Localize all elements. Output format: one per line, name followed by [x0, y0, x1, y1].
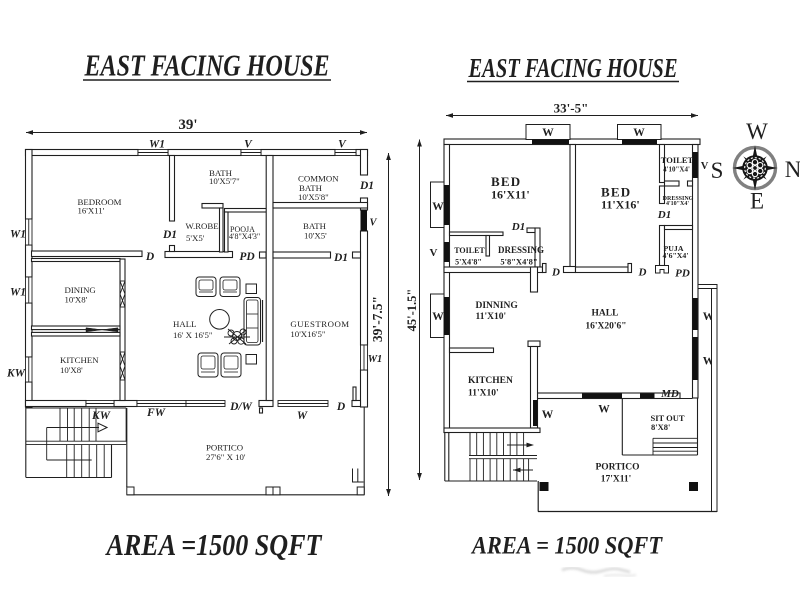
svg-text:4'10"X4': 4'10"X4' — [663, 166, 690, 174]
svg-text:V: V — [701, 161, 709, 172]
svg-text:5'X4'8": 5'X4'8" — [455, 258, 482, 267]
svg-text:16'X11': 16'X11' — [78, 206, 105, 216]
svg-text:4'10"X4': 4'10"X4' — [666, 201, 689, 207]
svg-text:10'X16'5": 10'X16'5" — [290, 329, 326, 339]
svg-text:D1: D1 — [657, 209, 671, 221]
svg-text:D1: D1 — [162, 229, 177, 241]
svg-text:S: S — [711, 158, 724, 183]
svg-text:KITCHEN: KITCHEN — [60, 355, 99, 365]
svg-text:N: N — [785, 157, 800, 182]
svg-text:W: W — [432, 201, 444, 213]
svg-text:4'8"X4'3": 4'8"X4'3" — [229, 232, 260, 241]
svg-text:17'X11': 17'X11' — [601, 475, 632, 485]
svg-text:D: D — [551, 267, 560, 279]
svg-text:D1: D1 — [511, 221, 525, 233]
svg-text:33'-5": 33'-5" — [554, 101, 589, 116]
svg-text:DINNING: DINNING — [476, 301, 519, 311]
svg-text:D/W: D/W — [229, 401, 253, 413]
svg-text:16'X11': 16'X11' — [491, 188, 530, 202]
svg-text:5'X5': 5'X5' — [186, 233, 205, 243]
svg-text:45'-1.5": 45'-1.5" — [405, 289, 419, 332]
svg-text:W: W — [633, 127, 645, 139]
svg-text:GUESTROOM: GUESTROOM — [290, 319, 349, 329]
svg-text:W: W — [542, 127, 554, 139]
svg-text:27'6" X 10': 27'6" X 10' — [206, 452, 246, 462]
svg-text:AREA =1500 SQFT: AREA =1500 SQFT — [105, 527, 323, 562]
svg-text:AREA = 1500 SQFT: AREA = 1500 SQFT — [470, 531, 663, 560]
svg-text:EAST FACING HOUSE: EAST FACING HOUSE — [468, 53, 678, 83]
svg-text:W: W — [598, 404, 610, 416]
svg-text:PD: PD — [675, 268, 690, 280]
svg-text:5'8"X4'8": 5'8"X4'8" — [500, 257, 537, 267]
svg-text:11'X10': 11'X10' — [476, 312, 507, 322]
svg-text:MD: MD — [660, 388, 679, 400]
svg-text:DRESSING: DRESSING — [498, 245, 544, 255]
svg-text:16'X20'6": 16'X20'6" — [585, 322, 626, 332]
svg-text:V: V — [430, 247, 438, 259]
svg-text:V: V — [369, 218, 377, 229]
svg-text:W1: W1 — [10, 229, 26, 241]
svg-text:W.ROBE: W.ROBE — [186, 221, 219, 231]
svg-text:W1: W1 — [149, 139, 165, 151]
svg-text:W1: W1 — [10, 287, 26, 299]
svg-text:D1: D1 — [333, 252, 348, 264]
svg-text:11'X16': 11'X16' — [601, 198, 640, 212]
svg-text:10'X8': 10'X8' — [60, 365, 83, 375]
svg-text:BATH: BATH — [303, 221, 327, 231]
svg-text:W: W — [542, 409, 554, 421]
svg-text:10'X8': 10'X8' — [65, 294, 88, 304]
svg-text:10'X5': 10'X5' — [304, 231, 327, 241]
svg-text:EAST FACING HOUSE: EAST FACING HOUSE — [84, 48, 330, 83]
svg-text:V: V — [244, 139, 253, 151]
svg-text:D1: D1 — [359, 180, 374, 192]
svg-text:TOILET: TOILET — [454, 246, 485, 255]
svg-text:HALL: HALL — [592, 309, 619, 319]
svg-text:HALL: HALL — [173, 319, 196, 329]
svg-text:KITCHEN: KITCHEN — [468, 376, 513, 386]
svg-text:KW: KW — [91, 410, 111, 422]
svg-text:8'X8': 8'X8' — [651, 422, 670, 432]
svg-text:PORTICO: PORTICO — [206, 443, 243, 453]
svg-text:FW: FW — [146, 407, 166, 419]
svg-text:COMMON: COMMON — [298, 174, 339, 184]
svg-text:W: W — [297, 410, 308, 422]
svg-text:D: D — [145, 251, 155, 263]
svg-text:39'-7.5": 39'-7.5" — [370, 296, 385, 342]
svg-text:V: V — [338, 139, 347, 151]
svg-text:39': 39' — [178, 117, 197, 133]
svg-text:10'X5'7": 10'X5'7" — [209, 176, 240, 186]
svg-text:W: W — [746, 119, 768, 144]
svg-text:PORTICO: PORTICO — [595, 463, 639, 473]
svg-text:PD: PD — [239, 251, 255, 263]
svg-text:16' X 16'5": 16' X 16'5" — [173, 330, 213, 340]
svg-text:W: W — [432, 311, 444, 323]
svg-text:TOILET: TOILET — [661, 155, 694, 165]
svg-text:11'X10': 11'X10' — [468, 389, 499, 399]
svg-text:4'6"X4': 4'6"X4' — [663, 251, 689, 260]
svg-text:E: E — [750, 189, 764, 214]
svg-text:D: D — [336, 401, 346, 413]
svg-text:10'X5'8": 10'X5'8" — [298, 192, 329, 202]
svg-text:W1: W1 — [368, 354, 383, 365]
svg-text:KW: KW — [6, 368, 26, 380]
svg-text:D: D — [638, 267, 647, 279]
